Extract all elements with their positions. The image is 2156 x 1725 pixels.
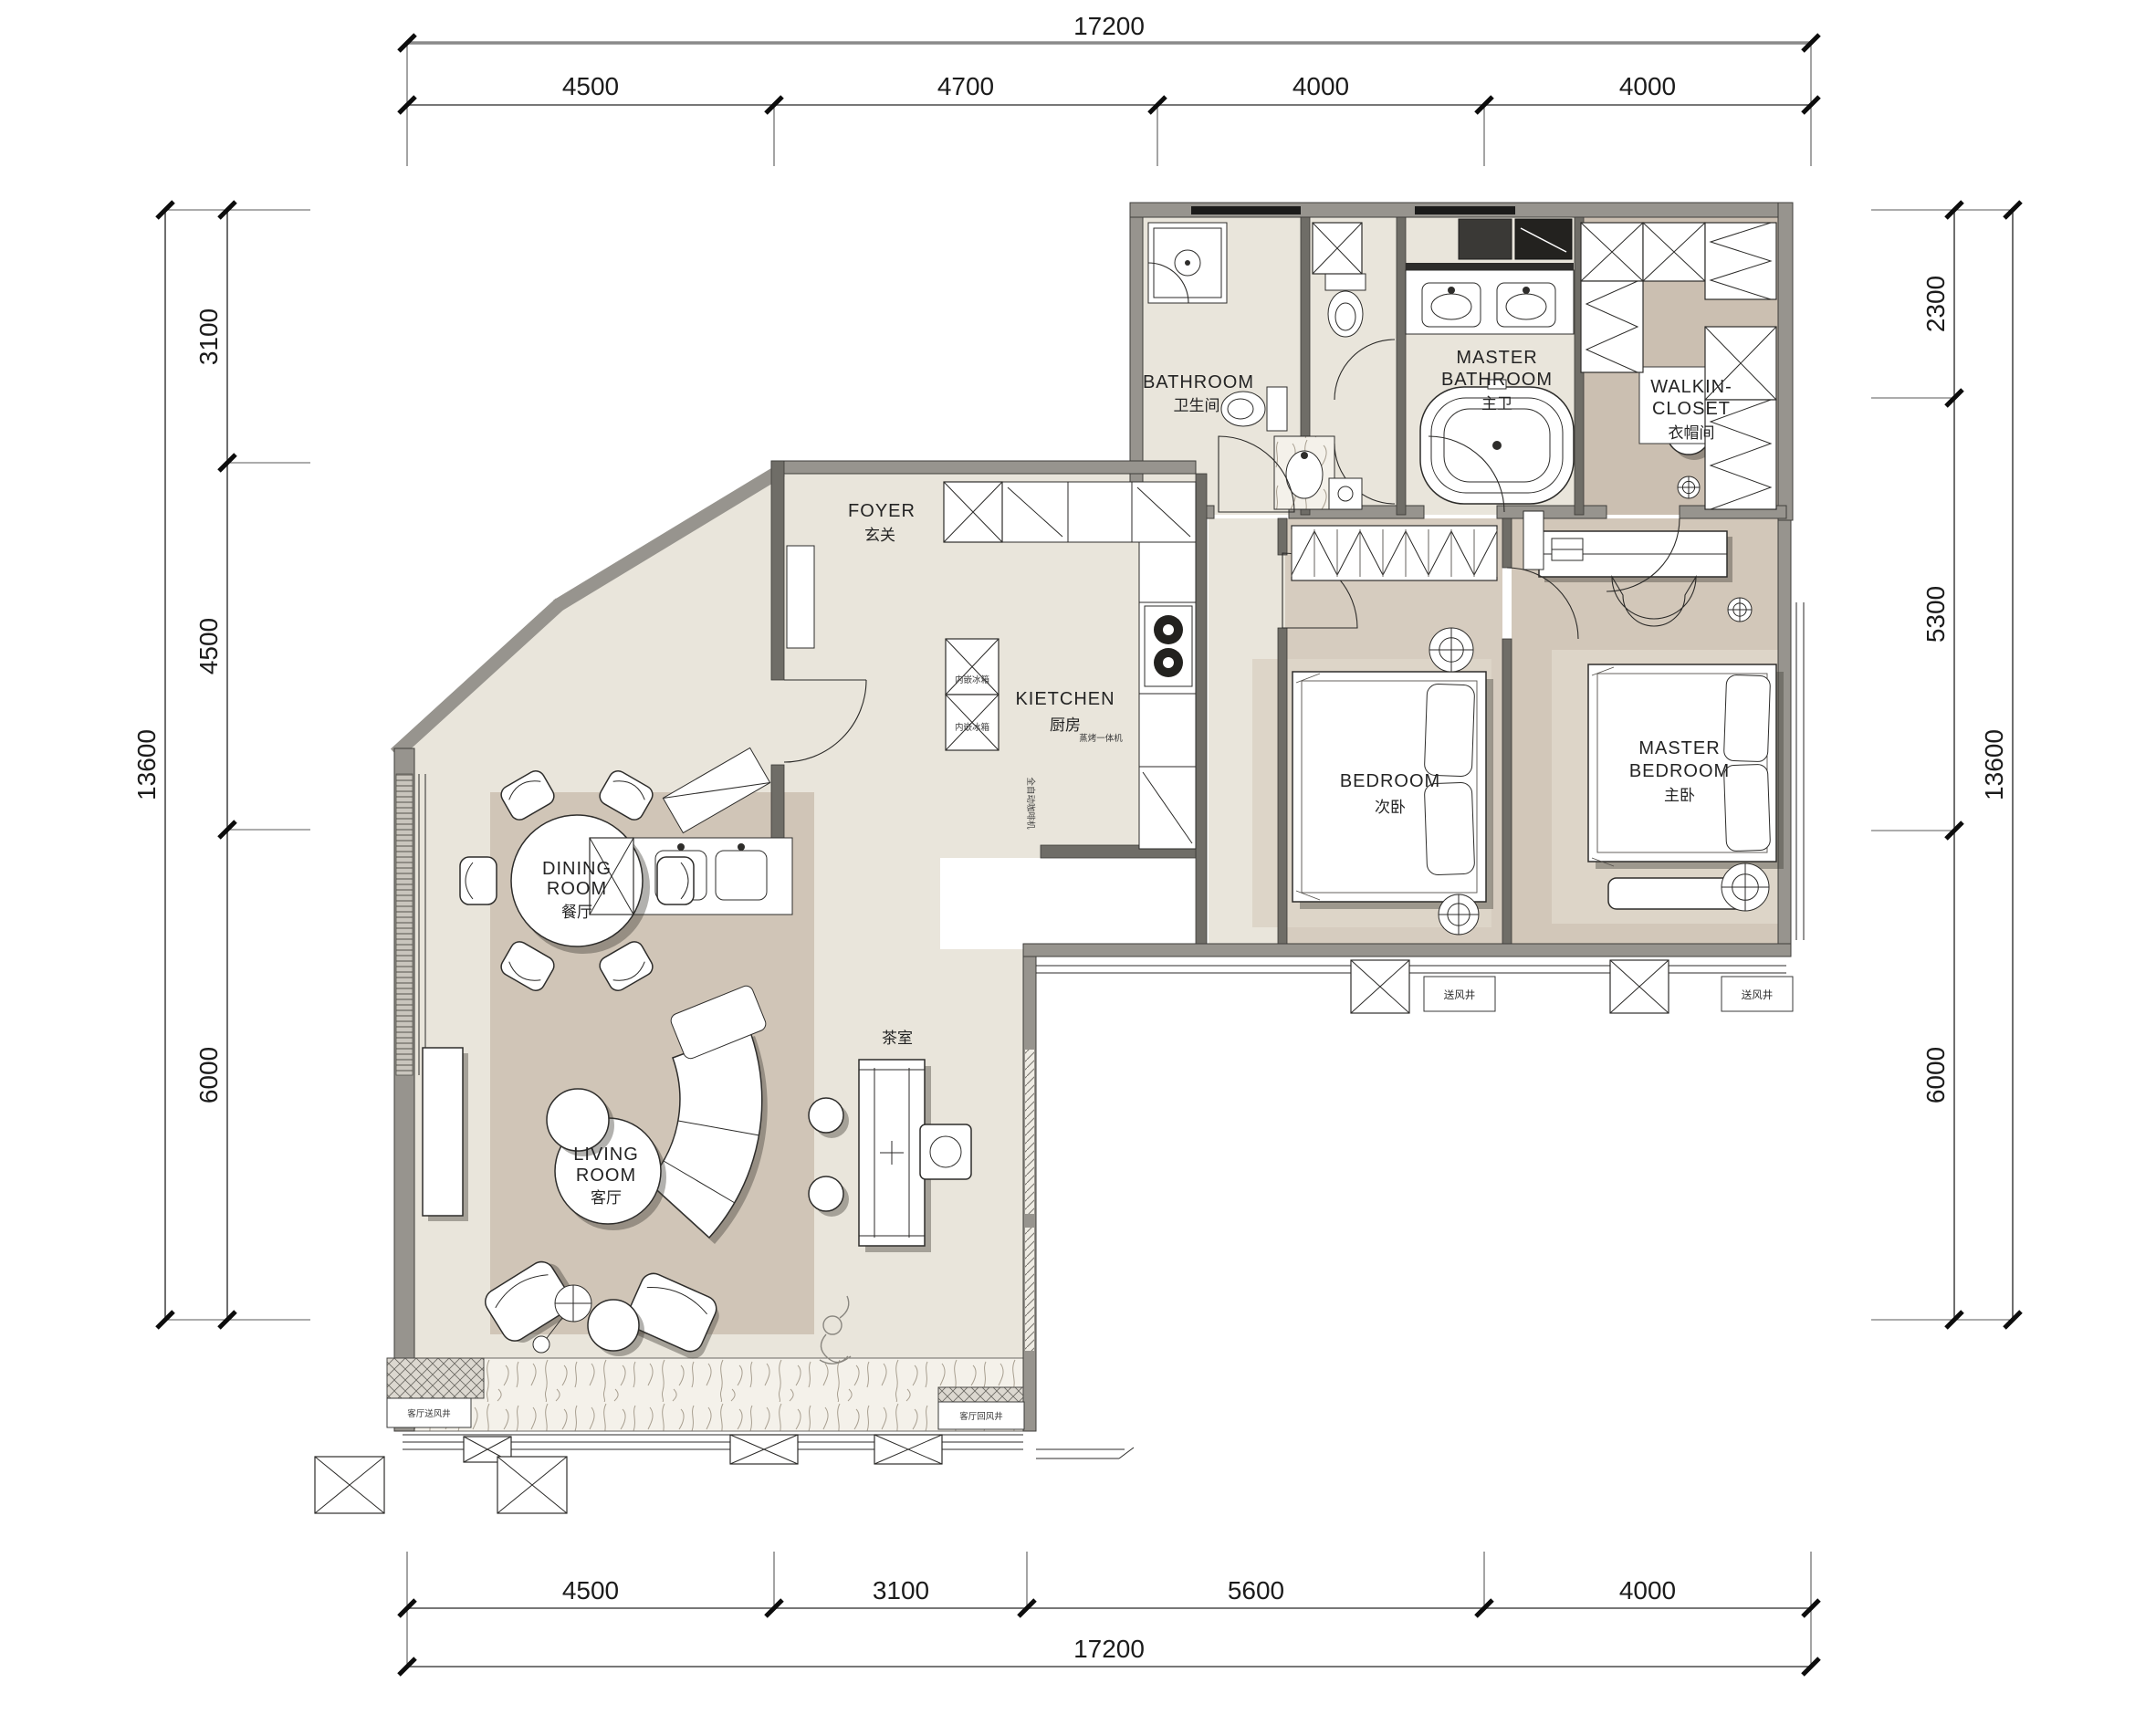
tea-room-label: 茶室 bbox=[882, 1030, 913, 1047]
living-sideboard bbox=[423, 1048, 463, 1216]
steam-oven-note: 蒸烤一体机 bbox=[1079, 733, 1123, 744]
living-pouf-small bbox=[547, 1089, 609, 1151]
west-window-mullion bbox=[396, 774, 413, 1075]
shower bbox=[1148, 223, 1227, 303]
balcony-floor bbox=[403, 1358, 1023, 1431]
bidet bbox=[1329, 478, 1362, 509]
bedroom-master-wall-b bbox=[1502, 639, 1512, 944]
dim-left-seg1: 3100 bbox=[194, 308, 223, 365]
coffee-machine-note: 全自动咖啡机 bbox=[1025, 777, 1036, 830]
master-air-shaft-label: 送风井 bbox=[1742, 988, 1774, 1001]
master-side-shelf bbox=[1523, 511, 1544, 570]
dim-bottom-seg2: 3100 bbox=[873, 1576, 929, 1605]
upper-right-wall bbox=[1778, 203, 1793, 520]
balcony-hatch-left bbox=[387, 1358, 484, 1398]
dim-bottom-seg4: 4000 bbox=[1619, 1576, 1676, 1605]
fridge-upper-note: 内嵌冰箱 bbox=[955, 674, 989, 685]
kitchen-label-cn: 厨房 bbox=[1050, 716, 1081, 734]
dim-right-seg2: 5300 bbox=[1921, 586, 1950, 643]
foyer-kitchen-top-wall bbox=[771, 461, 1196, 474]
bedroom-label: BEDROOM bbox=[1340, 771, 1440, 791]
bedroom-west-wall-b bbox=[1278, 628, 1287, 944]
dining-room-label-cn: 餐厅 bbox=[561, 904, 592, 921]
master-bedroom-label-cn: 主卧 bbox=[1664, 787, 1695, 804]
dim-left-total: 13600 bbox=[132, 729, 161, 800]
master-bathroom-label-2: BATHROOM bbox=[1441, 370, 1553, 390]
foyer-cabinet bbox=[787, 546, 814, 648]
dim-top-seg3: 4000 bbox=[1293, 72, 1349, 100]
bath-block-bottom-wall-c bbox=[1497, 506, 1607, 518]
master-bedroom-label-2: BEDROOM bbox=[1629, 761, 1730, 781]
toilet-wc bbox=[1325, 274, 1366, 337]
tea-stool-1 bbox=[809, 1098, 843, 1133]
bathroom-label: BATHROOM bbox=[1143, 372, 1254, 392]
bathroom-label-cn: 卫生间 bbox=[1174, 397, 1220, 414]
dim-top-seg2: 4700 bbox=[937, 72, 994, 100]
living-room-label-1: LIVING bbox=[573, 1145, 639, 1165]
master-bedroom-label-1: MASTER bbox=[1638, 738, 1720, 758]
ottoman bbox=[588, 1300, 639, 1351]
walkin-closet-label-1: WALKIN- bbox=[1650, 377, 1732, 397]
living-return-shaft-label: 客厅回风井 bbox=[959, 1411, 1003, 1422]
dim-right-total: 13600 bbox=[1980, 729, 2008, 800]
dim-top-seg1: 4500 bbox=[562, 72, 619, 100]
living-east-window-2 bbox=[1025, 1228, 1034, 1351]
floor-plan-sheet: 17200 4500 4700 4000 4000 4500 3100 5600… bbox=[0, 0, 2156, 1725]
dim-right-seg1: 2300 bbox=[1921, 276, 1950, 332]
dim-left-seg2: 4500 bbox=[194, 618, 223, 674]
bedroom-block-bottom-wall bbox=[1023, 944, 1791, 957]
fridge-lower-note: 内嵌冰箱 bbox=[955, 722, 989, 733]
floor-plan-canvas: 17200 4500 4700 4000 4000 4500 3100 5600… bbox=[0, 0, 2156, 1725]
walkin-closet-label-cn: 衣帽间 bbox=[1669, 424, 1715, 442]
bedroom-master-wall-a bbox=[1502, 518, 1512, 568]
dining-room-label-2: ROOM bbox=[547, 879, 607, 899]
kitchen-east-wall bbox=[1196, 474, 1207, 944]
dim-top-total: 17200 bbox=[1073, 12, 1145, 40]
walkin-closet-label-2: CLOSET bbox=[1652, 399, 1731, 419]
tea-stool-2 bbox=[809, 1176, 843, 1211]
living-room-label-2: ROOM bbox=[576, 1166, 636, 1186]
window-lintel-1 bbox=[1191, 206, 1301, 214]
window-lintel-2 bbox=[1415, 206, 1515, 214]
kitchen-label: KIETCHEN bbox=[1015, 689, 1115, 709]
living-supply-shaft-label: 客厅送风井 bbox=[407, 1408, 451, 1419]
tea-chair bbox=[920, 1124, 971, 1179]
master-bathroom-label-cn: 主卫 bbox=[1481, 395, 1512, 413]
living-east-window-1 bbox=[1025, 1050, 1034, 1214]
dining-room-label-1: DINING bbox=[542, 859, 612, 879]
bedroom-label-cn: 次卧 bbox=[1375, 799, 1406, 816]
foyer-label-cn: 玄关 bbox=[864, 527, 895, 544]
dim-bottom-seg1: 4500 bbox=[562, 1576, 619, 1605]
master-bathroom-label-1: MASTER bbox=[1456, 348, 1537, 368]
foyer-west-wall-a bbox=[771, 461, 784, 680]
dim-bottom-total: 17200 bbox=[1073, 1635, 1145, 1663]
wc-masterbath-wall bbox=[1397, 217, 1406, 515]
living-room-label-cn: 客厅 bbox=[591, 1189, 622, 1207]
foyer-label: FOYER bbox=[848, 501, 916, 521]
dim-left-seg3: 6000 bbox=[194, 1047, 223, 1103]
dim-bottom-seg3: 5600 bbox=[1228, 1576, 1284, 1605]
bedroom-west-wall-a bbox=[1278, 518, 1287, 555]
dim-right-seg3: 6000 bbox=[1921, 1047, 1950, 1103]
bedroom-air-shaft-label: 送风井 bbox=[1444, 988, 1476, 1001]
dim-top-seg4: 4000 bbox=[1619, 72, 1676, 100]
balcony-hatch-right bbox=[938, 1387, 1023, 1402]
